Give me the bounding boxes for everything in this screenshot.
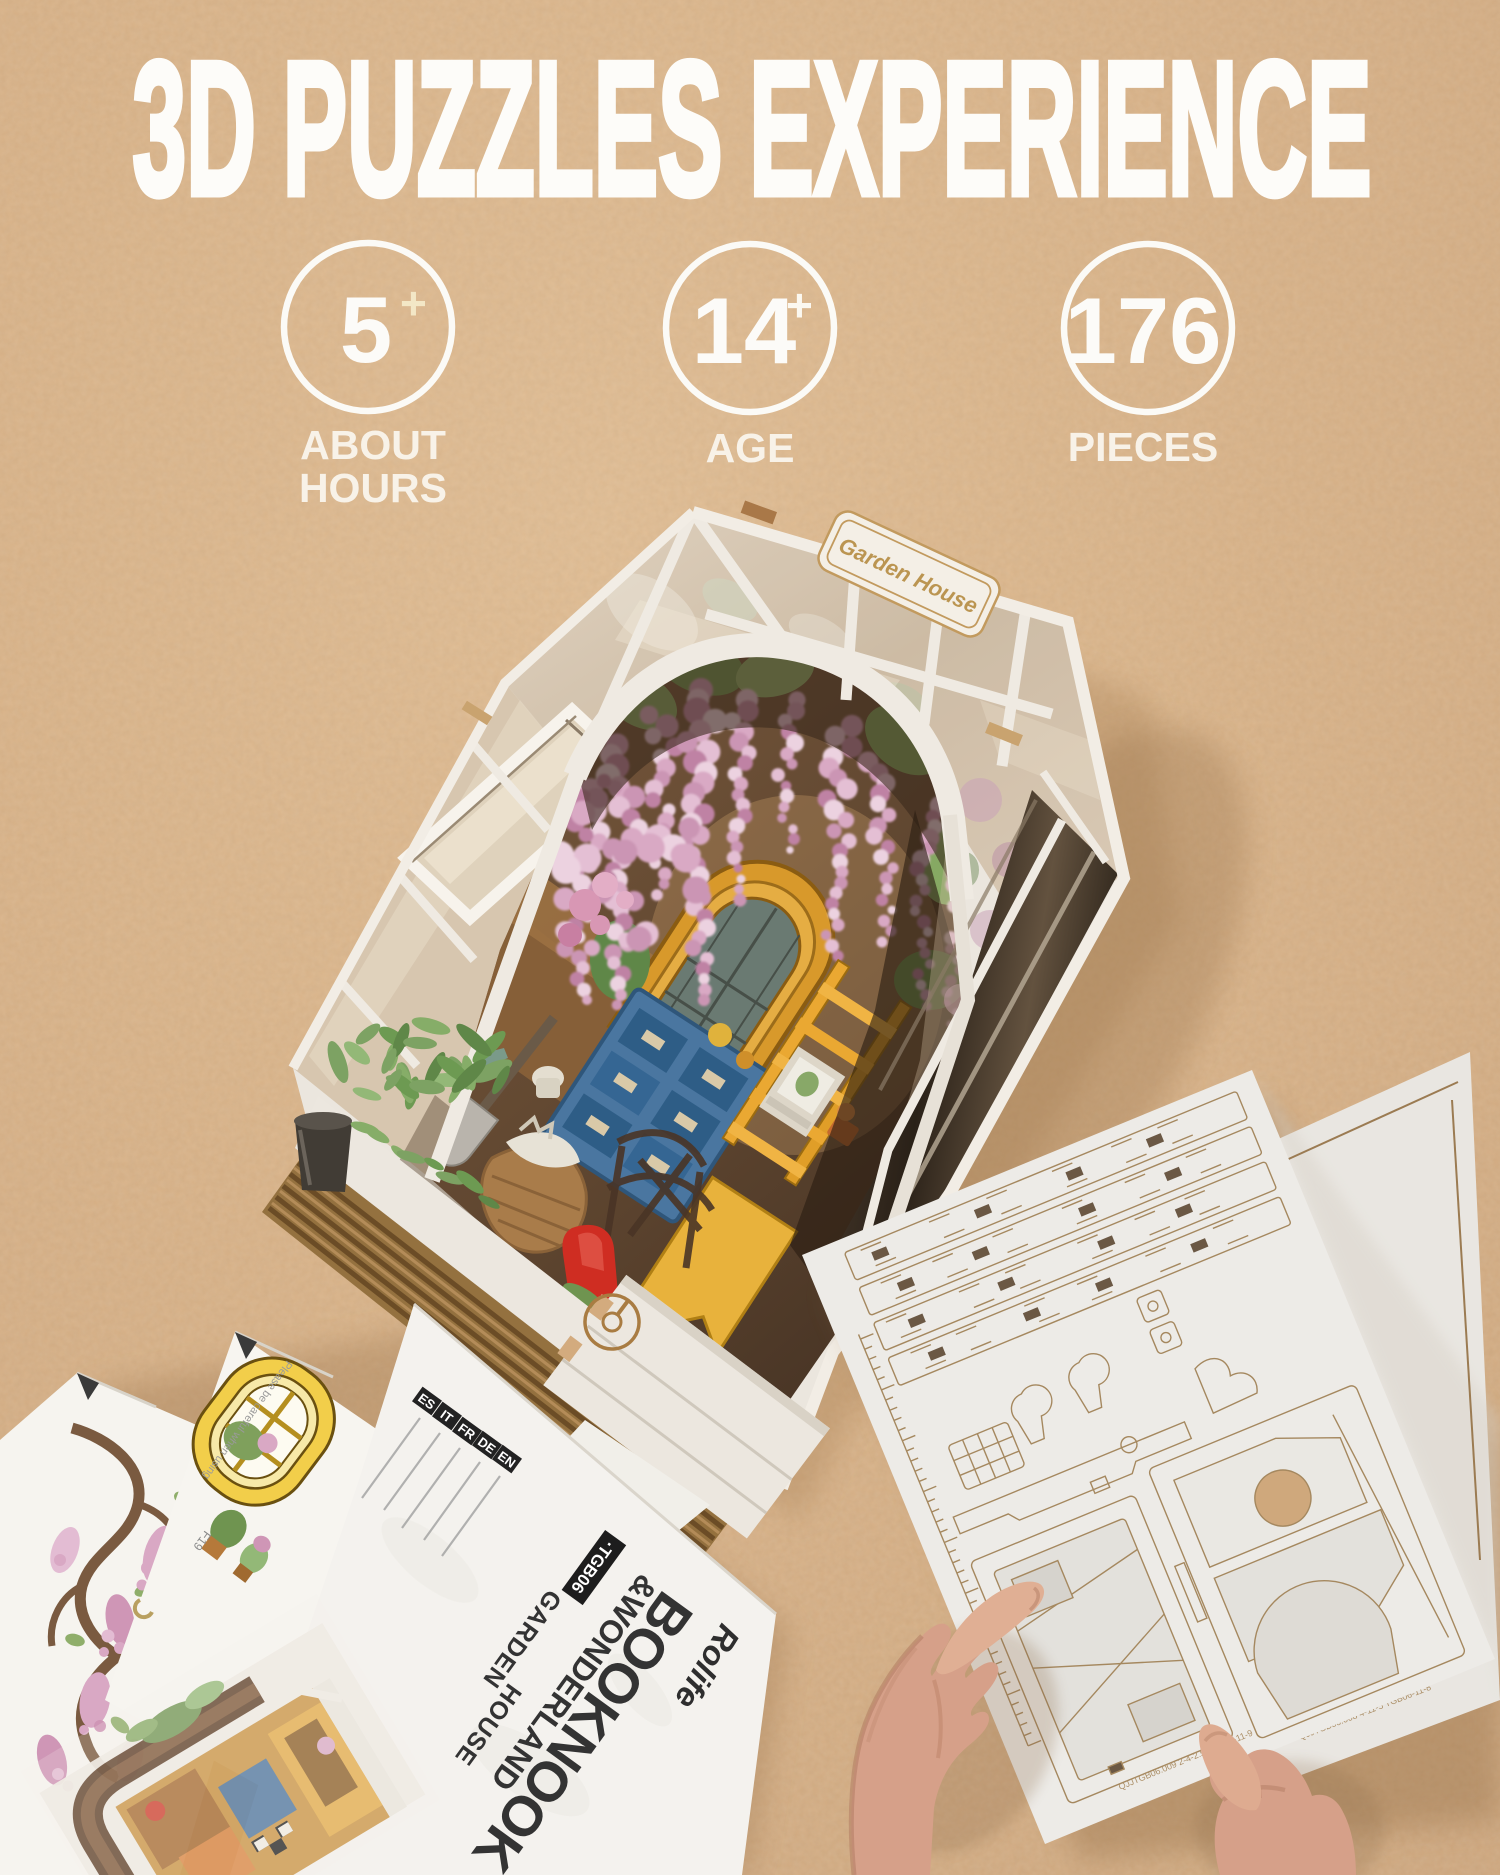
svg-text:+: + xyxy=(400,277,427,329)
svg-text:HOURS: HOURS xyxy=(299,465,447,511)
svg-text:PIECES: PIECES xyxy=(1068,424,1218,470)
svg-text:ABOUT: ABOUT xyxy=(300,422,446,468)
svg-text:14: 14 xyxy=(692,278,797,383)
svg-text:+: + xyxy=(786,279,813,331)
svg-text:176: 176 xyxy=(1065,278,1222,383)
svg-text:3D PUZZLES EXPERIENCE: 3D PUZZLES EXPERIENCE xyxy=(133,23,1372,235)
svg-text:5: 5 xyxy=(340,277,392,382)
svg-text:AGE: AGE xyxy=(706,425,795,471)
